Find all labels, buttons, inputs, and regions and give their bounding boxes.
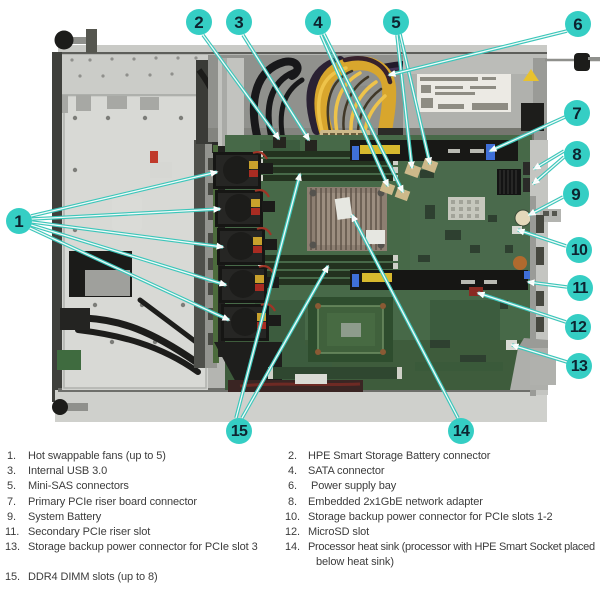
svg-text:4: 4 bbox=[313, 13, 323, 32]
svg-text:10: 10 bbox=[571, 242, 588, 259]
svg-text:14: 14 bbox=[453, 423, 470, 440]
svg-text:9: 9 bbox=[571, 185, 580, 204]
svg-text:1: 1 bbox=[14, 212, 23, 231]
svg-text:13: 13 bbox=[571, 358, 588, 375]
svg-text:15: 15 bbox=[231, 423, 248, 440]
svg-text:2: 2 bbox=[194, 13, 203, 32]
svg-text:12: 12 bbox=[570, 319, 587, 336]
svg-text:3: 3 bbox=[234, 13, 243, 32]
svg-text:5: 5 bbox=[391, 13, 400, 32]
svg-text:11: 11 bbox=[572, 280, 588, 297]
svg-text:7: 7 bbox=[572, 104, 581, 123]
svg-text:8: 8 bbox=[572, 145, 581, 164]
svg-text:6: 6 bbox=[573, 15, 582, 34]
